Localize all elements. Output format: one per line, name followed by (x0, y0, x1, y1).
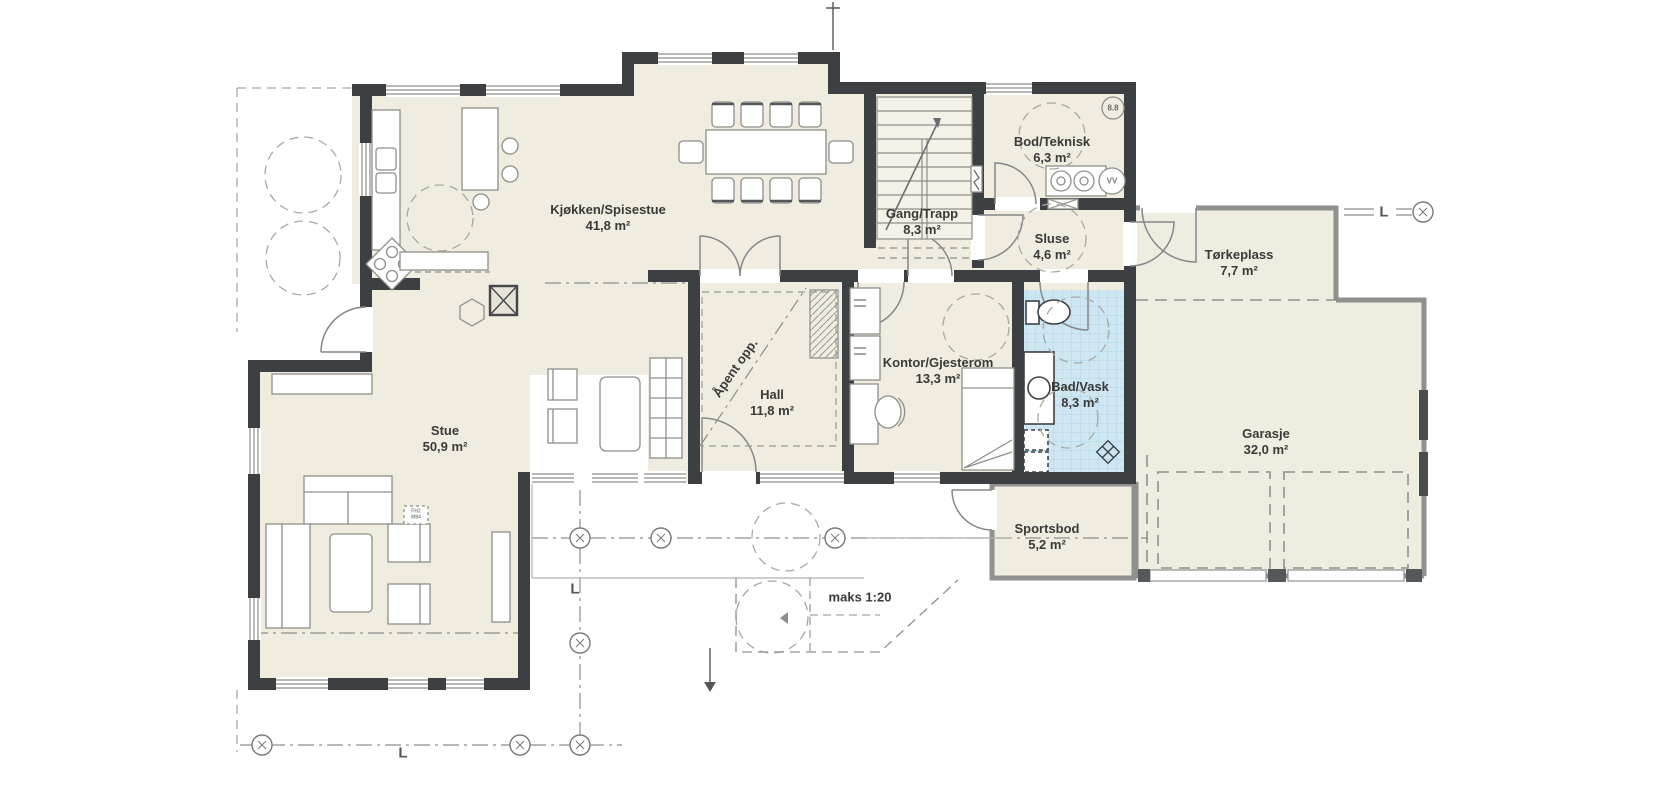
ramp-slope-label: maks 1:20 (829, 590, 892, 605)
room-area: 7,7 m² (1205, 263, 1274, 279)
garage-doors (1138, 569, 1422, 582)
room-area: 32,0 m² (1242, 442, 1290, 458)
sink-bowl (376, 148, 396, 170)
room-name: Garasje (1242, 426, 1290, 442)
desk-chair (875, 396, 901, 428)
kitchen-island (462, 108, 498, 190)
cabinet (850, 336, 880, 380)
room-label-bad-vask: Bad/Vask 8,3 m² (1051, 379, 1109, 412)
coffee-table (330, 534, 372, 612)
dryer-machine (1024, 452, 1048, 472)
fireplace-column (490, 286, 517, 315)
daybed (600, 377, 640, 451)
sink-bowl (376, 173, 396, 193)
room-label-stue: Stue 50,9 m² (423, 423, 468, 456)
sofa (266, 524, 310, 628)
room-area: 5,2 m² (1015, 537, 1080, 553)
grid-letter-bottom: L (398, 745, 407, 762)
room-area: 6,3 m² (1014, 150, 1090, 166)
room-name: Kjøkken/Spisestue (550, 202, 666, 218)
room-area: 41,8 m² (550, 218, 666, 234)
media-bench (492, 532, 510, 622)
room-name: Sluse (1033, 231, 1071, 247)
dining-table (706, 130, 826, 174)
room-label-hall: Hall 11,8 m² (750, 387, 794, 420)
room-area: 11,8 m² (750, 403, 794, 419)
room-name: Hall (750, 387, 794, 403)
washing-machine (1024, 430, 1048, 450)
toilet-bowl (1038, 300, 1070, 324)
basin (1028, 377, 1050, 399)
floor-plan-drawing (0, 0, 1670, 800)
floor-plan: Kjøkken/Spisestue 41,8 m² Gang/Trapp 8,3… (0, 0, 1670, 800)
kitchen-counter (400, 252, 488, 270)
ramp-arrow (780, 612, 788, 624)
sportsbod-door (952, 490, 992, 530)
electrical-panel (971, 166, 982, 192)
room-name: Bod/Teknisk (1014, 134, 1090, 150)
room-name: Gang/Trapp (886, 206, 958, 222)
room-label-sluse: Sluse 4,6 m² (1033, 231, 1071, 264)
room-area: 50,9 m² (423, 439, 468, 455)
room-name: Kontor/Gjesterom (883, 355, 994, 371)
desk (850, 384, 878, 444)
room-label-sportsbod: Sportsbod 5,2 m² (1015, 521, 1080, 554)
room-label-garasje: Garasje 32,0 m² (1242, 426, 1290, 459)
armchair (388, 584, 430, 624)
cabinet (850, 288, 880, 334)
grid-letter-middle: L (570, 581, 579, 598)
room-area: 4,6 m² (1033, 247, 1071, 263)
room-label-kontor-gjesterom: Kontor/Gjesterom 13,3 m² (883, 355, 994, 388)
furniture-tag: FH2 M84 (411, 510, 421, 521)
sideboard (272, 374, 372, 394)
room-label-gang-trapp: Gang/Trapp 8,3 m² (886, 206, 958, 239)
toilet-tank (1026, 301, 1039, 324)
room-label-kjokken-spisestue: Kjøkken/Spisestue 41,8 m² (550, 202, 666, 235)
room-label-torkeplass: Tørkeplass 7,7 m² (1205, 247, 1274, 280)
room-area: 8,3 m² (886, 222, 958, 238)
water-heater-label: VV (1107, 177, 1118, 186)
wardrobe (810, 290, 838, 358)
room-name: Sportsbod (1015, 521, 1080, 537)
room-label-bod-teknisk: Bod/Teknisk 6,3 m² (1014, 134, 1090, 167)
ref-badge: 8.8 (1107, 104, 1118, 113)
room-area: 8,3 m² (1051, 395, 1109, 411)
room-area: 13,3 m² (883, 371, 994, 387)
armchair (388, 524, 430, 562)
room-name: Bad/Vask (1051, 379, 1109, 395)
room-name: Tørkeplass (1205, 247, 1274, 263)
room-name: Stue (423, 423, 468, 439)
grid-letter-right: L (1379, 204, 1388, 221)
